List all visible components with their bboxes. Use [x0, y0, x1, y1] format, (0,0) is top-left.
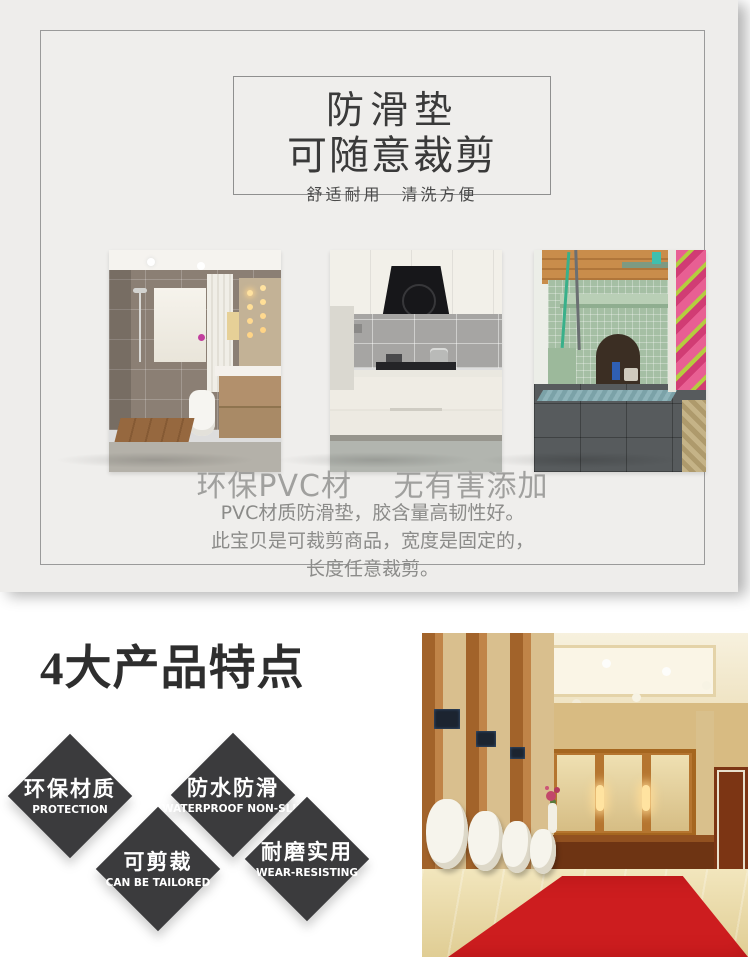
bathroom-shower-head — [133, 288, 147, 293]
kitchen-hood-ring — [402, 284, 436, 318]
kitchen-lower-cabinets — [330, 377, 502, 435]
restroom-wall-sconce — [596, 785, 604, 811]
restroom-vase — [548, 803, 557, 833]
kitchen-counter — [330, 370, 502, 377]
restroom-photo — [422, 633, 748, 957]
bathroom-towel — [227, 312, 239, 340]
restroom-vanity-counter — [550, 835, 714, 873]
bathroom-sink-top — [215, 366, 281, 376]
bathroom-mirror-bulbs — [247, 290, 253, 296]
restroom-urinal — [530, 829, 556, 874]
kitchen-backsplash — [330, 314, 502, 368]
product-tagline: 舒适耐用 清洗方便 — [234, 181, 550, 205]
bathroom-window-shade — [154, 288, 206, 362]
restroom-screen — [434, 709, 460, 729]
balcony-bucket — [624, 368, 638, 381]
restroom-screen — [476, 731, 496, 747]
product-title: 防滑垫 — [234, 86, 550, 134]
balcony-blue-bottle — [612, 362, 620, 380]
balcony-bench — [548, 348, 576, 384]
feature-label: 可剪裁 CAN BE TAILORED — [96, 807, 220, 931]
bathroom-vanity — [219, 376, 281, 438]
balcony-pink-curtain — [676, 250, 706, 390]
restroom-urinal — [426, 799, 468, 869]
feature-diamond-tailorable: 可剪裁 CAN BE TAILORED — [96, 807, 220, 931]
kitchen-drawer-handle — [390, 408, 442, 411]
bathroom-photo — [109, 250, 281, 472]
balcony-spray-bottle — [652, 252, 661, 264]
feature-zh: 可剪裁 — [124, 849, 193, 875]
bathroom-wall-shade — [109, 270, 131, 430]
restroom-mirror-pane — [604, 755, 642, 831]
restroom-urinal — [502, 821, 532, 873]
feature-zh: 耐磨实用 — [261, 839, 353, 865]
restroom-mirror-frame — [550, 749, 696, 837]
feature-diamond-wear: 耐磨实用 WEAR-RESISTING — [245, 797, 369, 921]
restroom-pillar — [696, 711, 714, 855]
restroom-mirror-pane — [651, 755, 689, 831]
restroom-wall-sconce — [642, 785, 650, 811]
title-box: 防滑垫 可随意裁剪 舒适耐用 清洗方便 — [233, 76, 551, 195]
kitchen-photo — [330, 250, 502, 472]
balcony-photo — [534, 250, 706, 472]
hero-sheet: 防滑垫 可随意裁剪 舒适耐用 清洗方便 — [0, 0, 738, 592]
description-line: PVC材质防滑垫，胶含量高韧性好。 — [41, 499, 704, 527]
restroom-urinal — [468, 811, 503, 871]
description-line: 此宝贝是可裁剪商品，宽度是固定的， — [41, 527, 704, 555]
bathroom-ceiling-lights — [147, 258, 155, 266]
feature-en: WEAR-RESISTING — [256, 867, 358, 879]
product-detail-page: 防滑垫 可随意裁剪 舒适耐用 清洗方便 — [0, 0, 750, 971]
feature-zh: 环保材质 — [24, 776, 116, 802]
balcony-door-frame — [668, 250, 676, 392]
bathroom-accessory — [198, 334, 205, 341]
hero-card: 防滑垫 可随意裁剪 舒适耐用 清洗方便 — [40, 30, 705, 565]
features-heading: 4大产品特点 — [40, 641, 305, 697]
description-line: 长度任意裁剪。 — [41, 555, 704, 583]
feature-en: CAN BE TAILORED — [106, 877, 211, 889]
material-description: PVC材质防滑垫，胶含量高韧性好。 此宝贝是可裁剪商品，宽度是固定的， 长度任意… — [41, 499, 704, 583]
restroom-mirror-pane — [557, 755, 595, 831]
restroom-screen — [510, 747, 525, 759]
kitchen-left-counter — [330, 306, 354, 390]
bathroom-toilet — [189, 390, 215, 436]
restroom-flowers — [546, 791, 556, 801]
feature-label: 耐磨实用 WEAR-RESISTING — [245, 797, 369, 921]
bathroom-shower-bar — [139, 292, 141, 362]
product-title-line2: 可随意裁剪 — [234, 134, 550, 178]
bathroom-mirror — [239, 278, 281, 366]
balcony-mosaic-border — [537, 390, 677, 401]
